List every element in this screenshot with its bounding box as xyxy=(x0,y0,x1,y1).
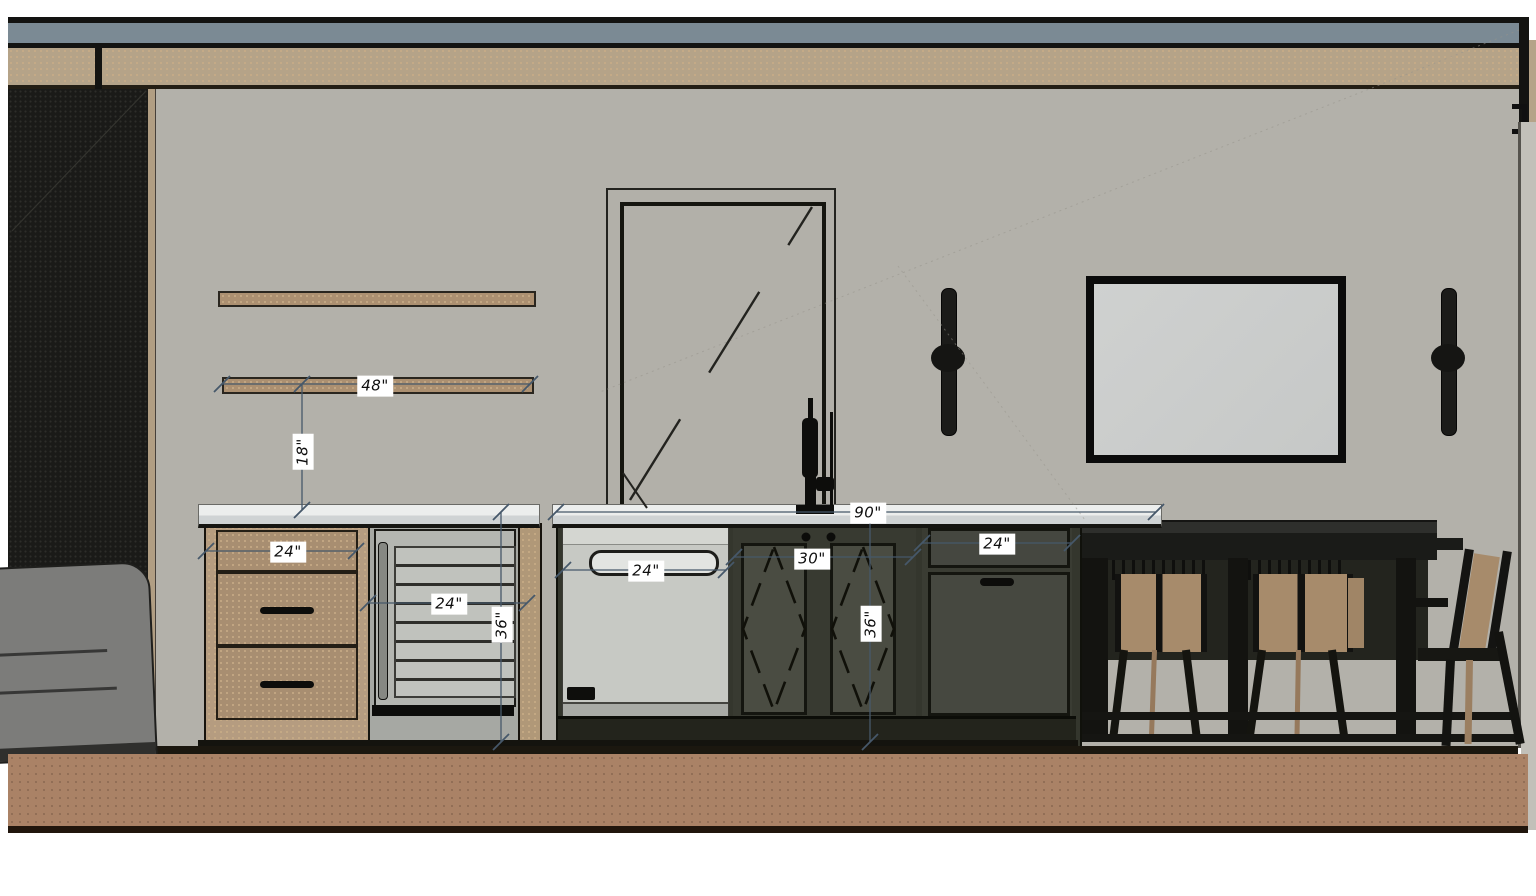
floor-edge-line xyxy=(8,826,1528,833)
dimension-label-wine-fridge: 24" xyxy=(431,594,467,615)
dimension-label-island-width: 90" xyxy=(850,503,886,524)
ceiling-accent-band xyxy=(8,23,1519,43)
drawer-bottom xyxy=(216,646,358,720)
sofa xyxy=(0,561,158,764)
island-cabinet-right xyxy=(922,523,1072,744)
right-wall-sliver xyxy=(1521,122,1536,830)
dimension-label-dishwasher: 24" xyxy=(628,561,664,582)
dimension-label-shelf-width: 48" xyxy=(357,376,393,397)
elevation-drawing: 48" 18" 24" 24" 36" 24" 30" 36" 90" 24" xyxy=(0,0,1536,896)
right-beam-return xyxy=(1529,40,1536,122)
faucet-lower xyxy=(805,476,816,506)
wall-sconce-right xyxy=(1431,288,1465,434)
baseboard-line xyxy=(155,746,1518,754)
end-panel xyxy=(518,523,542,748)
bar-stool-back xyxy=(1253,574,1353,652)
floating-shelf-upper xyxy=(218,291,536,307)
faucet-body xyxy=(802,418,818,478)
sconce-orb-icon xyxy=(931,344,965,372)
dining-table-edge xyxy=(1072,533,1437,560)
dimension-label-shelf-to-counter: 18" xyxy=(293,434,314,470)
faucet-base xyxy=(796,505,834,514)
sofa-seam xyxy=(0,649,107,657)
island-right-handle xyxy=(980,578,1014,586)
drawer-handle xyxy=(260,681,314,688)
wine-fridge-handle xyxy=(378,542,388,700)
sofa-seam xyxy=(0,687,117,695)
wall-sconce-left xyxy=(931,288,965,434)
sconce-orb-icon xyxy=(1431,344,1465,372)
wine-fridge-vent xyxy=(372,705,514,716)
floor xyxy=(8,754,1528,826)
faucet xyxy=(790,396,840,514)
left-countertop xyxy=(198,504,540,528)
island-right-door xyxy=(928,572,1070,716)
dimension-label-center-cabinet: 30" xyxy=(794,549,830,570)
dining-table-end-bracket xyxy=(1437,538,1463,550)
dimension-label-island-height: 36" xyxy=(861,606,882,642)
dining-chair-leg xyxy=(1465,660,1473,744)
wall-art-frame xyxy=(1086,276,1346,463)
dimension-label-left-run-height: 36" xyxy=(492,607,513,643)
dishwasher xyxy=(562,523,729,722)
bar-stool-back xyxy=(1348,578,1364,648)
wood-beam xyxy=(8,48,1519,89)
dimension-label-drawer-cabinet: 24" xyxy=(270,542,306,563)
dining-chair-arm xyxy=(1404,598,1448,607)
beam-divider xyxy=(95,48,102,89)
drawer-handle xyxy=(260,607,314,614)
faucet-hose xyxy=(830,412,833,506)
dimension-label-right-cabinet: 24" xyxy=(979,534,1015,555)
bar-stool-back xyxy=(1115,574,1207,652)
dishwasher-control-panel xyxy=(567,687,595,700)
dining-chair-seat xyxy=(1418,648,1506,661)
drawer-middle xyxy=(216,572,358,646)
